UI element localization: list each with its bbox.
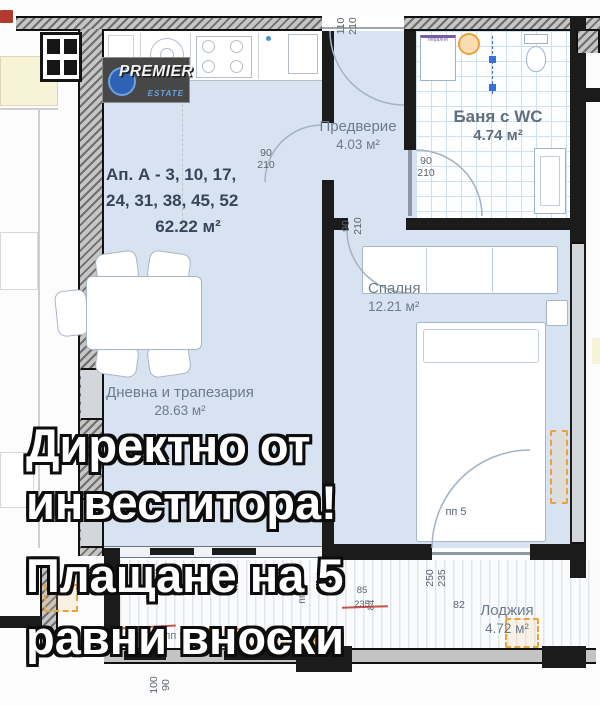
premier-estate-logo: PREMIER ESTATE xyxy=(102,57,190,103)
bath-area: 4.74 м² xyxy=(426,127,570,146)
logo-name: PREMIER xyxy=(119,63,193,81)
bedroom-loggia-door-sill xyxy=(432,552,530,555)
stove-burner xyxy=(230,60,243,73)
bedroom-window xyxy=(572,242,584,544)
shaft-symbol xyxy=(40,32,82,82)
kitchen-fridge xyxy=(288,34,318,74)
plumbing-node xyxy=(489,56,496,63)
overlay-line-4: равни вноски xyxy=(26,610,344,665)
washing-machine-label: пералня xyxy=(420,37,456,43)
stove-burner xyxy=(202,40,215,53)
floor-plan: PREMIER ESTATE пералня 110 210 90 210 90… xyxy=(0,0,600,705)
living-hall-wall-upper xyxy=(322,31,334,123)
stove-burner xyxy=(230,40,243,53)
right-wall-column xyxy=(576,31,600,53)
unit-title-line2: 24, 31, 38, 45, 52 xyxy=(106,188,270,214)
bath-label: Баня с WC 4.74 м² xyxy=(426,106,570,146)
bedroom-loggia-wall-right xyxy=(530,544,570,560)
shaft-cell xyxy=(64,39,77,54)
hallway-label: Предверие 4.03 м² xyxy=(300,118,416,154)
kitchen-marker-dot xyxy=(266,36,271,41)
dim-bottom-window: 100 90 xyxy=(149,665,183,705)
unit-title-line1: Ап. А - 3, 10, 17, xyxy=(106,162,270,188)
overlay-line-3: Плащане на 5 xyxy=(26,548,343,603)
loggia-area: 4.72 м² xyxy=(452,621,562,638)
hallway-area: 4.03 м² xyxy=(300,137,416,154)
nightstand xyxy=(546,300,568,326)
loggia-label: Лоджия 4.72 м² xyxy=(452,602,562,638)
shaft-cell xyxy=(47,39,60,54)
top-wall-left xyxy=(16,16,322,31)
shaft-cell xyxy=(47,60,60,75)
bedroom-label: Спалня 12.21 м² xyxy=(368,280,462,316)
living-name: Дневна и трапезария xyxy=(56,384,304,403)
stove-burner xyxy=(202,60,215,73)
dining-chair xyxy=(54,288,91,337)
dim-bath-door: 90 210 xyxy=(408,156,444,180)
bedroom-area: 12.21 м² xyxy=(368,299,462,316)
dining-table xyxy=(86,276,202,350)
adjacent-wall-line xyxy=(0,108,58,110)
corner-red-mark xyxy=(0,10,13,23)
toilet-tank xyxy=(524,34,548,44)
bath-sink xyxy=(458,33,480,55)
logo-subtitle: ESTATE xyxy=(148,89,184,98)
overlay-line-1: Директно от xyxy=(26,418,310,473)
loggia-name: Лоджия xyxy=(452,602,562,621)
hall-bedroom-wall-right xyxy=(406,218,570,230)
unit-area: 62.22 м² xyxy=(106,214,270,240)
right-edge-kitchen-hint xyxy=(592,338,600,364)
plumbing-node xyxy=(489,84,496,91)
dim-loggia-door-bedroom: 250 235 xyxy=(425,563,469,593)
bed-pillow xyxy=(423,329,539,363)
bath-name: Баня с WC xyxy=(426,106,570,127)
bedroom-name: Спалня xyxy=(368,280,462,299)
adjacent-fixture xyxy=(0,232,38,290)
shaft-cell xyxy=(64,60,77,75)
dim-entry-door: 110 210 xyxy=(336,8,372,44)
door-tag-bedroom-loggia: пп 5 xyxy=(436,506,476,518)
dim-bedroom-door: 90 210 xyxy=(341,209,381,243)
shower-tray-inner xyxy=(540,156,560,206)
toilet-bowl xyxy=(526,46,546,72)
wardrobe-divider xyxy=(492,248,493,292)
unit-title: Ап. А - 3, 10, 17, 24, 31, 38, 45, 52 62… xyxy=(106,162,270,240)
overlay-line-2: инвеститора! xyxy=(26,475,337,530)
railing-column xyxy=(542,646,586,668)
kitchen-divider xyxy=(258,33,259,79)
right-edge-wall-stub xyxy=(586,88,600,102)
hallway-name: Предверие xyxy=(300,118,416,137)
radiator xyxy=(550,430,568,504)
living-label: Дневна и трапезария 28.63 м² xyxy=(56,384,304,420)
